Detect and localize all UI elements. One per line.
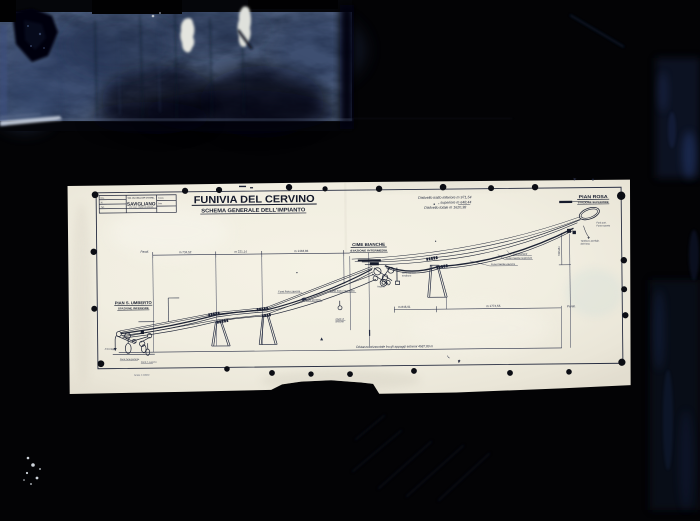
svg-text:Comm.: Comm. bbox=[158, 198, 165, 200]
svg-text:Distanza orizzontale fra gli a: Distanza orizzontale fra gli appoggi est… bbox=[356, 344, 433, 349]
svg-text:Fune traente: Fune traente bbox=[596, 224, 610, 227]
svg-text:Parall.: Parall. bbox=[140, 250, 149, 254]
svg-text:Fune freno zavorra: Fune freno zavorra bbox=[278, 289, 301, 293]
svg-text:SOC. IN AC. TORINO VIA GENOVA: SOC. IN AC. TORINO VIA GENOVA bbox=[129, 206, 154, 209]
svg-text:Ancoraggio: Ancoraggio bbox=[104, 348, 117, 351]
svg-text:Dislivello: Dislivello bbox=[558, 246, 561, 256]
svg-text:m 1774,55: m 1774,55 bbox=[486, 304, 501, 308]
svg-text:m 1448,83: m 1448,83 bbox=[294, 249, 309, 253]
svg-text:Fune traente zavorra: Fune traente zavorra bbox=[491, 262, 516, 266]
svg-text:del freno: del freno bbox=[581, 243, 591, 246]
svg-text:Funi portanti: Funi portanti bbox=[306, 298, 321, 302]
svg-text:„ superiore m 648,44: „ superiore m 648,44 bbox=[437, 200, 471, 204]
svg-text:STAZIONE SUPERIORE: STAZIONE SUPERIORE bbox=[578, 200, 609, 204]
svg-text:Fune freno innescata: Fune freno innescata bbox=[330, 289, 355, 293]
svg-text:Dis.: Dis. bbox=[101, 198, 105, 200]
svg-text:tensione: tensione bbox=[335, 320, 344, 323]
svg-text:Scala 1:10000: Scala 1:10000 bbox=[134, 374, 150, 377]
svg-text:tenditore: tenditore bbox=[402, 274, 412, 277]
svg-text:PIAN ROSA: PIAN ROSA bbox=[579, 194, 609, 199]
svg-text:m 846,91: m 846,91 bbox=[398, 305, 411, 309]
svg-text:Dislivello totale m 1620,38: Dislivello totale m 1620,38 bbox=[424, 205, 466, 209]
svg-text:Fune traente superiore: Fune traente superiore bbox=[506, 256, 533, 260]
svg-text:Argano: Argano bbox=[377, 285, 385, 288]
svg-text:Parall.: Parall. bbox=[567, 304, 576, 308]
svg-text:CIME BIANCHE: CIME BIANCHE bbox=[352, 242, 385, 247]
svg-text:m 221,14: m 221,14 bbox=[234, 250, 247, 254]
svg-text:PIAN S. UMBERTO: PIAN S. UMBERTO bbox=[115, 300, 152, 305]
svg-text:Tav.: Tav. bbox=[101, 207, 105, 209]
svg-text:m 734,52: m 734,52 bbox=[179, 250, 192, 254]
svg-text:Dislivello tratto inferiore: Dislivello tratto inferiore m 971,54 bbox=[418, 195, 471, 200]
svg-text:Contr. f. zavorra: Contr. f. zavorra bbox=[141, 361, 157, 364]
svg-text:SOC. NAZ. DELLE OFF. DI SAVIGL: SOC. NAZ. DELLE OFF. DI SAVIGL. bbox=[128, 196, 155, 199]
svg-text:Funi portanti: Funi portanti bbox=[513, 252, 528, 256]
